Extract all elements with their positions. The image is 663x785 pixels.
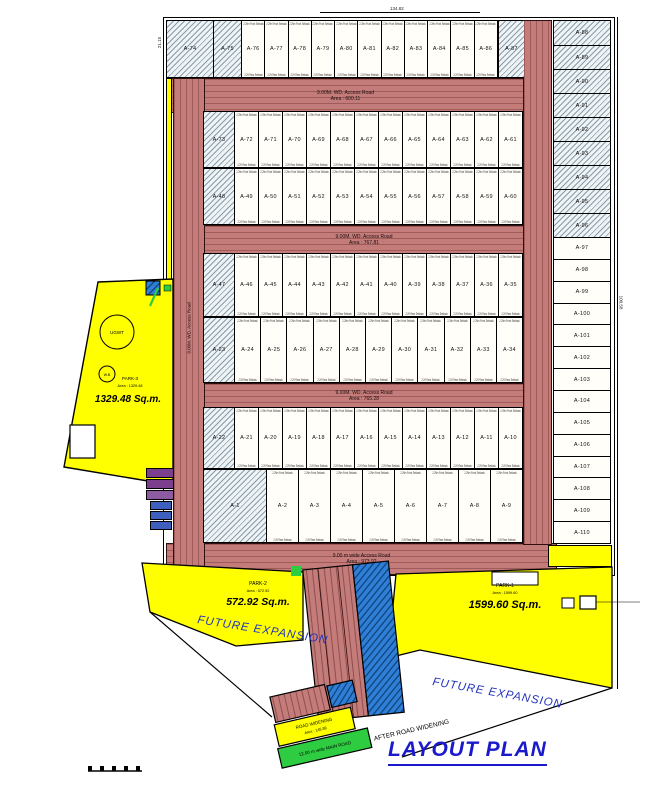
park3-area-note: Area : 1329.48 bbox=[118, 384, 143, 388]
plot-label: A-53 bbox=[336, 194, 349, 200]
plot-label: A-18 bbox=[312, 435, 325, 441]
plot-cell: A-106 bbox=[554, 434, 610, 456]
plot-cell: 2.29m Front SetbackA-832.29 Rear Setback bbox=[404, 21, 427, 77]
plot-label: A-100 bbox=[574, 311, 590, 317]
plot-label: A-11 bbox=[480, 435, 492, 441]
plot-rear-setback-note: 2.29 Rear Setback bbox=[474, 377, 492, 382]
plot-cell: A-104 bbox=[554, 390, 610, 412]
plot-front-setback-note: 2.29m Front Setback bbox=[260, 112, 280, 117]
plot-front-setback-note: 2.29m Front Setback bbox=[368, 318, 388, 323]
plot-front-setback-note: 2.29m Front Setback bbox=[356, 112, 376, 117]
plot-cell: 2.29m Front SetbackA-322.29 Rear Setback bbox=[444, 318, 470, 382]
plot-cell: 2.29m Front SetbackA-32.29 Rear Setback bbox=[298, 470, 330, 542]
plot-label: A-106 bbox=[574, 442, 590, 448]
ugwt-tank-label: UGWT bbox=[110, 330, 124, 335]
plot-label: A-9 bbox=[502, 503, 511, 509]
plot-rear-setback-note: 2.29 Rear Setback bbox=[261, 463, 279, 468]
plot-cell: 2.29m Front SetbackA-862.29 Rear Setback bbox=[474, 21, 497, 77]
plot-front-setback-note: 2.29m Front Setback bbox=[496, 470, 516, 475]
plot-label: A-72 bbox=[240, 137, 253, 143]
plot-label: A-96 bbox=[576, 223, 589, 229]
plot-front-setback-note: 2.29m Front Setback bbox=[432, 470, 452, 475]
plot-front-setback-note: 2.29m Front Setback bbox=[404, 112, 424, 117]
plot-rear-setback-note: 2.29 Rear Setback bbox=[381, 162, 399, 167]
plot-label: A-82 bbox=[386, 46, 399, 52]
plot-rear-setback-note: 2.29 Rear Setback bbox=[422, 377, 440, 382]
plot-front-setback-note: 2.29m Front Setback bbox=[452, 21, 472, 26]
plot-label: A-107 bbox=[574, 464, 590, 470]
plot-rear-setback-note: 2.29 Rear Setback bbox=[337, 72, 355, 77]
plot-front-setback-note: 2.29m Front Setback bbox=[452, 112, 472, 117]
plot-label: A-43 bbox=[312, 282, 325, 288]
plot-cell: 2.29m Front SetbackA-812.29 Rear Setback bbox=[357, 21, 380, 77]
plot-cell: 2.29m Front SetbackA-582.29 Rear Setback bbox=[450, 169, 474, 224]
plot-cell: 2.29m Front SetbackA-412.29 Rear Setback bbox=[354, 254, 378, 316]
plot-cell: 2.29m Front SetbackA-402.29 Rear Setback bbox=[378, 254, 402, 316]
plot-cell: A-48 bbox=[204, 169, 234, 224]
park1-box-large bbox=[580, 596, 596, 609]
plot-rear-setback-note: 2.29 Rear Setback bbox=[337, 537, 355, 542]
plot-cell: 2.29m Front SetbackA-652.29 Rear Setback bbox=[402, 112, 426, 167]
plot-front-setback-note: 2.29m Front Setback bbox=[500, 169, 520, 174]
amenity-box-5 bbox=[150, 511, 172, 520]
plot-cell: A-99 bbox=[554, 281, 610, 303]
plot-rear-setback-note: 2.29 Rear Setback bbox=[267, 72, 285, 77]
plot-label: A-41 bbox=[360, 282, 373, 288]
plot-rear-setback-note: 2.29 Rear Setback bbox=[369, 377, 387, 382]
plot-front-setback-note: 2.29m Front Setback bbox=[380, 408, 400, 413]
plot-cell: 2.29m Front SetbackA-552.29 Rear Setback bbox=[378, 169, 402, 224]
plot-label: A-70 bbox=[288, 137, 301, 143]
left-dimension-label: 21.15 bbox=[157, 35, 162, 50]
plot-rear-setback-note: 2.29 Rear Setback bbox=[453, 463, 471, 468]
plot-label: A-49 bbox=[240, 194, 253, 200]
plot-front-setback-note: 2.29m Front Setback bbox=[356, 169, 376, 174]
plot-cell: 2.29m Front SetbackA-852.29 Rear Setback bbox=[450, 21, 473, 77]
plot-band-top: A-74A-752.29m Front SetbackA-762.29 Rear… bbox=[166, 20, 498, 78]
plot-cell: A-23 bbox=[204, 318, 234, 382]
plot-cell: 2.29m Front SetbackA-62.29 Rear Setback bbox=[394, 470, 426, 542]
plot-rear-setback-note: 2.29 Rear Setback bbox=[500, 377, 518, 382]
plot-front-setback-note: 2.29m Front Setback bbox=[236, 112, 256, 117]
plot-label: A-26 bbox=[294, 347, 307, 353]
plot-front-setback-note: 2.29m Front Setback bbox=[428, 112, 448, 117]
plot-cell: A-102 bbox=[554, 346, 610, 368]
plot-label: A-68 bbox=[336, 137, 349, 143]
plot-cell: 2.29m Front SetbackA-502.29 Rear Setback bbox=[258, 169, 282, 224]
plot-label: A-40 bbox=[384, 282, 397, 288]
plot-label: A-31 bbox=[424, 347, 437, 353]
plot-label: A-12 bbox=[456, 435, 469, 441]
plot-rear-setback-note: 2.29 Rear Setback bbox=[429, 311, 447, 316]
plot-label: A-54 bbox=[360, 194, 373, 200]
plot-label: A-36 bbox=[480, 282, 493, 288]
plot-cell: A-75 bbox=[213, 21, 241, 77]
plot-front-setback-note: 2.29m Front Setback bbox=[308, 112, 328, 117]
plot-front-setback-note: 2.29m Front Setback bbox=[452, 254, 472, 259]
plot-label: A-38 bbox=[432, 282, 445, 288]
plot-rear-setback-note: 2.29 Rear Setback bbox=[477, 219, 495, 224]
plot-rear-setback-note: 2.29 Rear Setback bbox=[237, 219, 255, 224]
plot-label: A-51 bbox=[288, 194, 301, 200]
access-road-3-area: Area : 765.28 bbox=[349, 396, 379, 402]
plot-cell: A-103 bbox=[554, 368, 610, 390]
plot-rear-setback-note: 2.29 Rear Setback bbox=[357, 311, 375, 316]
plot-cell: 2.29m Front SetbackA-462.29 Rear Setback bbox=[234, 254, 258, 316]
amenity-box-2 bbox=[146, 479, 174, 489]
plot-front-setback-note: 2.29m Front Setback bbox=[266, 21, 286, 26]
plot-band-row6: A-12.29m Front SetbackA-22.29 Rear Setba… bbox=[203, 469, 523, 543]
amenity-box-3 bbox=[146, 490, 174, 500]
page-title: LAYOUT PLAN bbox=[388, 738, 547, 766]
plot-cell: 2.29m Front SetbackA-132.29 Rear Setback bbox=[426, 408, 450, 468]
plot-cell: 2.29m Front SetbackA-72.29 Rear Setback bbox=[426, 470, 458, 542]
plot-front-setback-note: 2.29m Front Setback bbox=[260, 169, 280, 174]
park3-structure-box bbox=[70, 425, 95, 458]
plot-label: A-66 bbox=[384, 137, 397, 143]
plot-rear-setback-note: 2.29 Rear Setback bbox=[285, 311, 303, 316]
plot-cell: A-90 bbox=[554, 69, 610, 93]
plot-rear-setback-note: 2.29 Rear Setback bbox=[501, 162, 519, 167]
plot-cell: A-73 bbox=[204, 112, 234, 167]
park3-area: UGWT W.B PARK-3 Area : 1329.48 1329.48 S… bbox=[60, 276, 174, 488]
plot-front-setback-note: 2.29m Front Setback bbox=[356, 254, 376, 259]
park2-area-note: Area : 572.92 bbox=[247, 589, 270, 593]
plot-cell: 2.29m Front SetbackA-542.29 Rear Setback bbox=[354, 169, 378, 224]
green-marker-park2 bbox=[291, 566, 301, 576]
amenity-box-1 bbox=[146, 468, 174, 478]
plot-cell: A-94 bbox=[554, 165, 610, 189]
plot-label: A-2 bbox=[278, 503, 287, 509]
plot-label: A-81 bbox=[363, 46, 376, 52]
plot-label: A-23 bbox=[213, 347, 226, 353]
plot-label: A-65 bbox=[408, 137, 421, 143]
plot-rear-setback-note: 2.29 Rear Setback bbox=[401, 537, 419, 542]
plot-rear-setback-note: 2.29 Rear Setback bbox=[237, 311, 255, 316]
plot-front-setback-note: 2.29m Front Setback bbox=[336, 470, 356, 475]
plot-cell: 2.29m Front SetbackA-362.29 Rear Setback bbox=[474, 254, 498, 316]
plot-cell: 2.29m Front SetbackA-292.29 Rear Setback bbox=[365, 318, 391, 382]
plot-label: A-32 bbox=[451, 347, 464, 353]
plot-front-setback-note: 2.29m Front Setback bbox=[476, 112, 496, 117]
plot-rear-setback-note: 2.29 Rear Setback bbox=[237, 162, 255, 167]
plot-cell: A-74 bbox=[167, 21, 213, 77]
park1-area-value: 1599.60 Sq.m. bbox=[469, 599, 542, 611]
plot-cell: 2.29m Front SetbackA-602.29 Rear Setback bbox=[498, 169, 522, 224]
plot-front-setback-note: 2.29m Front Setback bbox=[429, 21, 449, 26]
plot-rear-setback-note: 2.29 Rear Setback bbox=[453, 311, 471, 316]
plot-front-setback-note: 2.29m Front Setback bbox=[308, 169, 328, 174]
plot-cell: 2.29m Front SetbackA-102.29 Rear Setback bbox=[498, 408, 522, 468]
plot-label: A-20 bbox=[264, 435, 277, 441]
plot-front-setback-note: 2.29m Front Setback bbox=[380, 112, 400, 117]
plot-cell: A-47 bbox=[204, 254, 234, 316]
plot-cell: 2.29m Front SetbackA-772.29 Rear Setback bbox=[264, 21, 287, 77]
park3-area-value: 1329.48 Sq.m. bbox=[95, 394, 161, 405]
plot-cell: 2.29m Front SetbackA-82.29 Rear Setback bbox=[458, 470, 490, 542]
plot-cell: 2.29m Front SetbackA-622.29 Rear Setback bbox=[474, 112, 498, 167]
plot-label: A-7 bbox=[438, 503, 447, 509]
plot-cell: 2.29m Front SetbackA-572.29 Rear Setback bbox=[426, 169, 450, 224]
plot-rear-setback-note: 2.29 Rear Setback bbox=[381, 219, 399, 224]
plot-label: A-75 bbox=[221, 46, 234, 52]
plot-rear-setback-note: 2.29 Rear Setback bbox=[333, 219, 351, 224]
plot-label: A-10 bbox=[504, 435, 517, 441]
plot-cell: A-98 bbox=[554, 259, 610, 281]
plot-cell: 2.29m Front SetbackA-172.29 Rear Setback bbox=[330, 408, 354, 468]
plot-label: A-99 bbox=[576, 289, 589, 295]
plot-rear-setback-note: 2.29 Rear Setback bbox=[405, 463, 423, 468]
access-road-1: 9.00M. WD. Access Road Area : 600.11 bbox=[166, 78, 525, 113]
plot-front-setback-note: 2.29m Front Setback bbox=[284, 254, 304, 259]
plot-front-setback-note: 2.29m Front Setback bbox=[236, 254, 256, 259]
plot-rear-setback-note: 2.29 Rear Setback bbox=[405, 311, 423, 316]
plot-rear-setback-note: 2.29 Rear Setback bbox=[244, 72, 262, 77]
plot-rear-setback-note: 2.29 Rear Setback bbox=[465, 537, 483, 542]
amenity-box-4 bbox=[150, 501, 172, 510]
plot-label: A-35 bbox=[504, 282, 517, 288]
plot-cell: 2.29m Front SetbackA-392.29 Rear Setback bbox=[402, 254, 426, 316]
plot-cell: 2.29m Front SetbackA-672.29 Rear Setback bbox=[354, 112, 378, 167]
plot-label: A-59 bbox=[480, 194, 493, 200]
plot-cell: 2.29m Front SetbackA-332.29 Rear Setback bbox=[470, 318, 496, 382]
plot-label: A-94 bbox=[576, 175, 589, 181]
plot-label: A-28 bbox=[346, 347, 359, 353]
plot-cell: 2.29m Front SetbackA-352.29 Rear Setback bbox=[498, 254, 522, 316]
plot-cell: 2.29m Front SetbackA-282.29 Rear Setback bbox=[339, 318, 365, 382]
plot-cell: 2.29m Front SetbackA-662.29 Rear Setback bbox=[378, 112, 402, 167]
plot-rear-setback-note: 2.29 Rear Setback bbox=[238, 377, 256, 382]
plot-cell: A-91 bbox=[554, 93, 610, 117]
plot-front-setback-note: 2.29m Front Setback bbox=[313, 21, 333, 26]
plot-rear-setback-note: 2.29 Rear Setback bbox=[273, 537, 291, 542]
plot-front-setback-note: 2.29m Front Setback bbox=[237, 318, 257, 323]
plot-label: A-77 bbox=[270, 46, 283, 52]
plot-cell: 2.29m Front SetbackA-702.29 Rear Setback bbox=[282, 112, 306, 167]
plot-front-setback-note: 2.29m Front Setback bbox=[260, 408, 280, 413]
plot-cell: 2.29m Front SetbackA-682.29 Rear Setback bbox=[330, 112, 354, 167]
plot-front-setback-note: 2.29m Front Setback bbox=[476, 254, 496, 259]
bottom-section: PARK-2 Area : 572.92 572.92 Sq.m. PARK-1… bbox=[0, 555, 663, 785]
park1-name: PARK-1 bbox=[496, 583, 514, 589]
plot-cell: 2.29m Front SetbackA-372.29 Rear Setback bbox=[450, 254, 474, 316]
plot-rear-setback-note: 2.29 Rear Setback bbox=[384, 72, 402, 77]
park3-name: PARK-3 bbox=[122, 376, 138, 381]
plot-label: A-21 bbox=[240, 435, 253, 441]
plot-label: A-62 bbox=[480, 137, 493, 143]
plot-cell: 2.29m Front SetbackA-712.29 Rear Setback bbox=[258, 112, 282, 167]
plot-rear-setback-note: 2.29 Rear Setback bbox=[261, 162, 279, 167]
plot-front-setback-note: 2.29m Front Setback bbox=[290, 318, 310, 323]
plot-rear-setback-note: 2.29 Rear Setback bbox=[265, 377, 283, 382]
plot-rear-setback-note: 2.29 Rear Setback bbox=[309, 162, 327, 167]
plot-label: A-48 bbox=[213, 194, 226, 200]
plot-cell: 2.29m Front SetbackA-152.29 Rear Setback bbox=[378, 408, 402, 468]
plot-cell: 2.29m Front SetbackA-782.29 Rear Setback bbox=[288, 21, 311, 77]
plot-front-setback-note: 2.29m Front Setback bbox=[464, 470, 484, 475]
plot-front-setback-note: 2.29m Front Setback bbox=[243, 21, 263, 26]
plot-band-row2_upper: A-732.29m Front SetbackA-722.29 Rear Set… bbox=[203, 111, 523, 168]
plot-label: A-79 bbox=[317, 46, 330, 52]
plot-front-setback-note: 2.29m Front Setback bbox=[289, 21, 309, 26]
plot-cell: 2.29m Front SetbackA-142.29 Rear Setback bbox=[402, 408, 426, 468]
plot-front-setback-note: 2.29m Front Setback bbox=[500, 254, 520, 259]
plot-rear-setback-note: 2.29 Rear Setback bbox=[453, 72, 471, 77]
plot-rear-setback-note: 2.29 Rear Setback bbox=[453, 162, 471, 167]
plot-label: A-56 bbox=[408, 194, 421, 200]
plot-label: A-45 bbox=[264, 282, 277, 288]
plot-label: A-6 bbox=[406, 503, 415, 509]
plot-rear-setback-note: 2.29 Rear Setback bbox=[360, 72, 378, 77]
plot-band-corner: A-87 bbox=[498, 20, 523, 78]
plot-label: A-55 bbox=[384, 194, 397, 200]
plot-label: A-33 bbox=[477, 347, 490, 353]
right-plot-column: A-88A-89A-90A-91A-92A-93A-94A-95A-96A-97… bbox=[553, 20, 611, 544]
plot-rear-setback-note: 2.29 Rear Setback bbox=[291, 72, 309, 77]
plot-label: A-90 bbox=[576, 79, 589, 85]
plot-cell: 2.29m Front SetbackA-242.29 Rear Setback bbox=[234, 318, 260, 382]
plot-label: A-29 bbox=[372, 347, 385, 353]
plot-band-row3: A-472.29m Front SetbackA-462.29 Rear Set… bbox=[203, 253, 523, 317]
plot-rear-setback-note: 2.29 Rear Setback bbox=[501, 311, 519, 316]
plot-cell: 2.29m Front SetbackA-802.29 Rear Setback bbox=[334, 21, 357, 77]
plot-label: A-44 bbox=[288, 282, 301, 288]
plot-front-setback-note: 2.29m Front Setback bbox=[359, 21, 379, 26]
plot-rear-setback-note: 2.29 Rear Setback bbox=[333, 463, 351, 468]
plot-front-setback-note: 2.29m Front Setback bbox=[332, 408, 352, 413]
plot-label: A-73 bbox=[213, 137, 226, 143]
plot-label: A-74 bbox=[184, 46, 197, 52]
plot-rear-setback-note: 2.29 Rear Setback bbox=[477, 311, 495, 316]
plot-label: A-71 bbox=[264, 137, 277, 143]
plot-cell: 2.29m Front SetbackA-532.29 Rear Setback bbox=[330, 169, 354, 224]
plot-front-setback-note: 2.29m Front Setback bbox=[342, 318, 362, 323]
plot-front-setback-note: 2.29m Front Setback bbox=[304, 470, 324, 475]
plot-front-setback-note: 2.29m Front Setback bbox=[476, 169, 496, 174]
plot-label: A-24 bbox=[241, 347, 254, 353]
plot-cell: 2.29m Front SetbackA-22.29 Rear Setback bbox=[266, 470, 298, 542]
plot-cell: 2.29m Front SetbackA-522.29 Rear Setback bbox=[306, 169, 330, 224]
access-road-1-area: Area : 600.11 bbox=[331, 96, 361, 102]
plot-label: A-108 bbox=[574, 486, 590, 492]
plot-front-setback-note: 2.29m Front Setback bbox=[284, 112, 304, 117]
plot-cell: 2.29m Front SetbackA-422.29 Rear Setback bbox=[330, 254, 354, 316]
plot-front-setback-note: 2.29m Front Setback bbox=[447, 318, 467, 323]
plot-label: A-89 bbox=[576, 55, 589, 61]
plot-front-setback-note: 2.29m Front Setback bbox=[428, 408, 448, 413]
plot-cell: A-89 bbox=[554, 45, 610, 69]
central-vertical-access-road bbox=[523, 20, 552, 545]
plot-front-setback-note: 2.29m Front Setback bbox=[395, 318, 415, 323]
plot-rear-setback-note: 2.29 Rear Setback bbox=[501, 463, 519, 468]
plot-front-setback-note: 2.29m Front Setback bbox=[404, 169, 424, 174]
park1-box-small bbox=[562, 598, 574, 608]
plot-label: A-15 bbox=[384, 435, 397, 441]
plot-cell: A-1 bbox=[204, 470, 266, 542]
plot-label: A-27 bbox=[320, 347, 333, 353]
plot-cell: 2.29m Front SetbackA-182.29 Rear Setback bbox=[306, 408, 330, 468]
plot-rear-setback-note: 2.29 Rear Setback bbox=[261, 219, 279, 224]
plot-front-setback-note: 2.29m Front Setback bbox=[380, 254, 400, 259]
plot-cell: 2.29m Front SetbackA-252.29 Rear Setback bbox=[260, 318, 286, 382]
plot-rear-setback-note: 2.29 Rear Setback bbox=[429, 219, 447, 224]
plot-label: A-22 bbox=[213, 435, 226, 441]
plot-cell: 2.29m Front SetbackA-642.29 Rear Setback bbox=[426, 112, 450, 167]
plot-cell: 2.29m Front SetbackA-512.29 Rear Setback bbox=[282, 169, 306, 224]
plot-rear-setback-note: 2.29 Rear Setback bbox=[477, 72, 495, 77]
layout-plan-canvas: 134.82 21.15 100.58 9.00M. WD. Access Ro… bbox=[0, 0, 663, 785]
plot-label: A-60 bbox=[504, 194, 517, 200]
well-label: W.B bbox=[104, 373, 111, 377]
plot-rear-setback-note: 2.29 Rear Setback bbox=[405, 219, 423, 224]
plot-front-setback-note: 2.29m Front Setback bbox=[332, 169, 352, 174]
amenity-box-6 bbox=[150, 521, 172, 530]
plot-label: A-88 bbox=[576, 30, 589, 36]
plot-label: A-39 bbox=[408, 282, 421, 288]
plot-label: A-57 bbox=[432, 194, 445, 200]
plot-cell: A-92 bbox=[554, 117, 610, 141]
top-dimension-line bbox=[320, 12, 480, 13]
plot-cell: 2.29m Front SetbackA-52.29 Rear Setback bbox=[362, 470, 394, 542]
plot-rear-setback-note: 2.29 Rear Setback bbox=[314, 72, 332, 77]
plot-label: A-110 bbox=[574, 530, 590, 536]
plot-label: A-19 bbox=[288, 435, 301, 441]
plot-front-setback-note: 2.29m Front Setback bbox=[428, 169, 448, 174]
plot-cell: 2.29m Front SetbackA-312.29 Rear Setback bbox=[417, 318, 443, 382]
plot-label: A-87 bbox=[505, 46, 518, 52]
left-vertical-road-label: 9.00M. WD. Access Road bbox=[187, 302, 192, 353]
plot-rear-setback-note: 2.29 Rear Setback bbox=[429, 463, 447, 468]
plot-rear-setback-note: 2.29 Rear Setback bbox=[501, 219, 519, 224]
plot-cell: 2.29m Front SetbackA-92.29 Rear Setback bbox=[490, 470, 522, 542]
plot-cell: 2.29m Front SetbackA-452.29 Rear Setback bbox=[258, 254, 282, 316]
plot-front-setback-note: 2.29m Front Setback bbox=[356, 408, 376, 413]
plot-label: A-97 bbox=[576, 245, 589, 251]
plot-label: A-1 bbox=[230, 503, 239, 509]
plot-cell: 2.29m Front SetbackA-592.29 Rear Setback bbox=[474, 169, 498, 224]
plot-rear-setback-note: 2.29 Rear Setback bbox=[237, 463, 255, 468]
plot-front-setback-note: 2.29m Front Setback bbox=[473, 318, 493, 323]
plot-label: A-104 bbox=[574, 398, 590, 404]
plot-cell: 2.29m Front SetbackA-762.29 Rear Setback bbox=[241, 21, 264, 77]
plot-rear-setback-note: 2.29 Rear Setback bbox=[317, 377, 335, 382]
plot-front-setback-note: 2.29m Front Setback bbox=[236, 408, 256, 413]
right-dimension-label: 100.58 bbox=[618, 294, 623, 312]
plot-front-setback-note: 2.29m Front Setback bbox=[499, 318, 519, 323]
plot-cell: A-87 bbox=[499, 21, 524, 77]
plot-label: A-105 bbox=[574, 420, 590, 426]
plot-front-setback-note: 2.29m Front Setback bbox=[284, 408, 304, 413]
plot-front-setback-note: 2.29m Front Setback bbox=[404, 408, 424, 413]
plot-label: A-91 bbox=[576, 103, 589, 109]
plot-cell: 2.29m Front SetbackA-302.29 Rear Setback bbox=[391, 318, 417, 382]
plot-cell: A-108 bbox=[554, 477, 610, 499]
top-dimension-label: 134.82 bbox=[388, 6, 406, 11]
plot-front-setback-note: 2.29m Front Setback bbox=[500, 408, 520, 413]
plot-label: A-92 bbox=[576, 127, 589, 133]
plot-front-setback-note: 2.29m Front Setback bbox=[284, 169, 304, 174]
plot-front-setback-note: 2.29m Front Setback bbox=[332, 112, 352, 117]
plot-cell: 2.29m Front SetbackA-432.29 Rear Setback bbox=[306, 254, 330, 316]
plot-label: A-34 bbox=[503, 347, 516, 353]
plot-band-row4: A-232.29m Front SetbackA-242.29 Rear Set… bbox=[203, 317, 523, 383]
plot-cell: A-110 bbox=[554, 521, 610, 543]
scale-bar bbox=[88, 766, 142, 771]
plot-front-setback-note: 2.29m Front Setback bbox=[332, 254, 352, 259]
plot-label: A-25 bbox=[267, 347, 280, 353]
plot-cell: A-88 bbox=[554, 21, 610, 45]
plot-cell: A-22 bbox=[204, 408, 234, 468]
